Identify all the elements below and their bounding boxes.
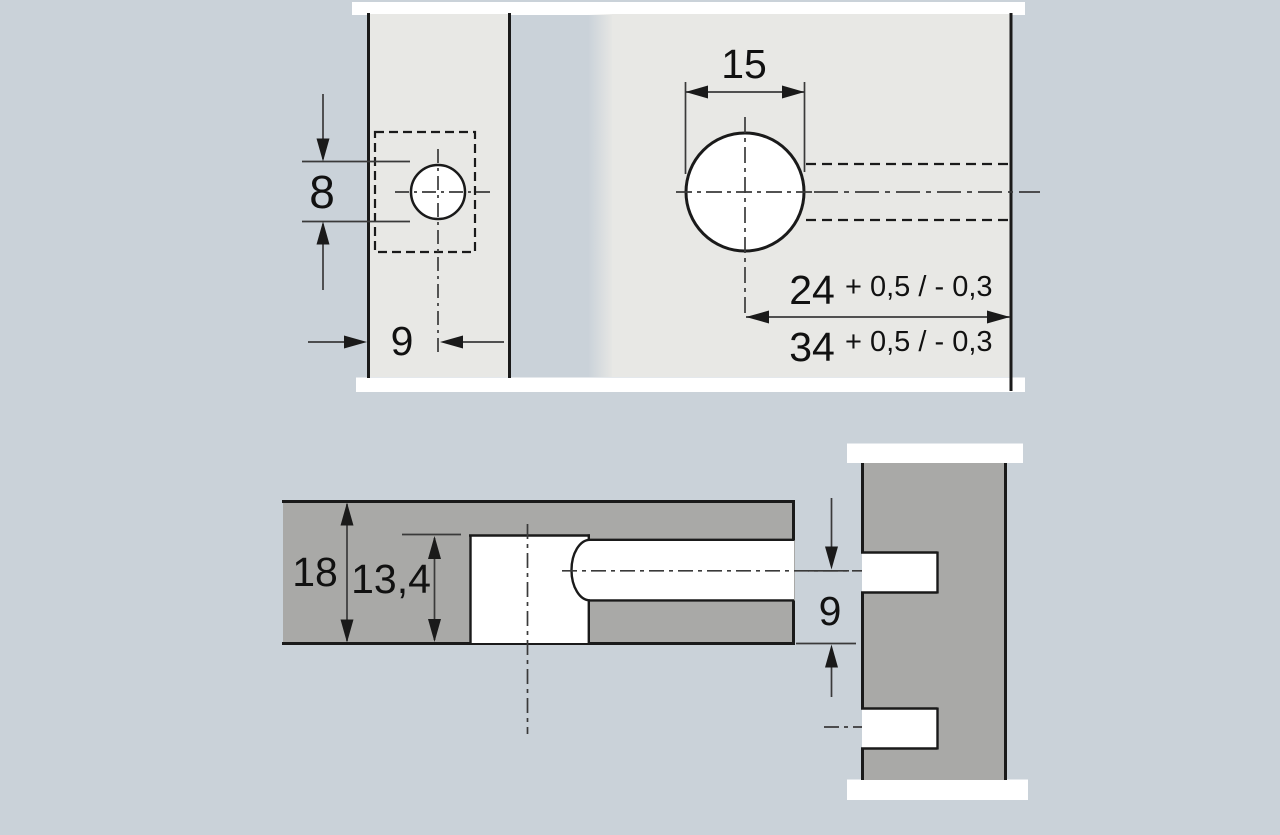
- cabinet-panel-section: [847, 444, 1028, 801]
- dim-label-34: 34: [789, 324, 835, 370]
- dim-label-24-tolerance: + 0,5 / - 0,3: [845, 271, 993, 303]
- top-edge-band: [352, 2, 1025, 15]
- cabinet-hole-lower: [861, 708, 938, 750]
- dim-label-24: 24: [789, 267, 835, 313]
- arrowhead-right-icon: [344, 336, 367, 349]
- cabinet-top-edge-band: [847, 444, 1023, 464]
- cabinet-bottom-edge-band: [847, 780, 1028, 801]
- top-view: 8 9 15: [302, 2, 1040, 392]
- cam-pocket: [469, 534, 590, 643]
- bottom-edge-band: [356, 378, 1025, 393]
- cabinet-hole-upper: [861, 552, 938, 594]
- technical-drawing-canvas: 8 9 15: [0, 0, 1280, 835]
- dim-label-134: 13,4: [351, 556, 431, 602]
- arrowhead-down-icon: [317, 139, 330, 162]
- arrowhead-up-icon: [825, 645, 838, 668]
- cabinet-panel-face: [612, 14, 1012, 377]
- dim-label-9-section: 9: [819, 588, 842, 634]
- cam-pocket-fill: [470, 535, 590, 643]
- drawing-svg: 8 9 15: [0, 0, 1280, 835]
- hole-fill: [862, 553, 937, 593]
- dim-label-34-tolerance: + 0,5 / - 0,3: [845, 326, 993, 358]
- hole-fill: [862, 709, 937, 749]
- dim-label-9: 9: [391, 318, 414, 364]
- dim-label-18: 18: [292, 549, 338, 595]
- dimension-axis-9: 9: [796, 498, 856, 697]
- cabinet-panel-fade-edge: [588, 14, 614, 377]
- arrowhead-down-icon: [825, 547, 838, 570]
- dim-label-15: 15: [721, 41, 767, 87]
- section-view: 18 13,4 9: [282, 444, 1028, 801]
- arrowhead-up-icon: [317, 222, 330, 245]
- dim-label-8: 8: [309, 166, 335, 218]
